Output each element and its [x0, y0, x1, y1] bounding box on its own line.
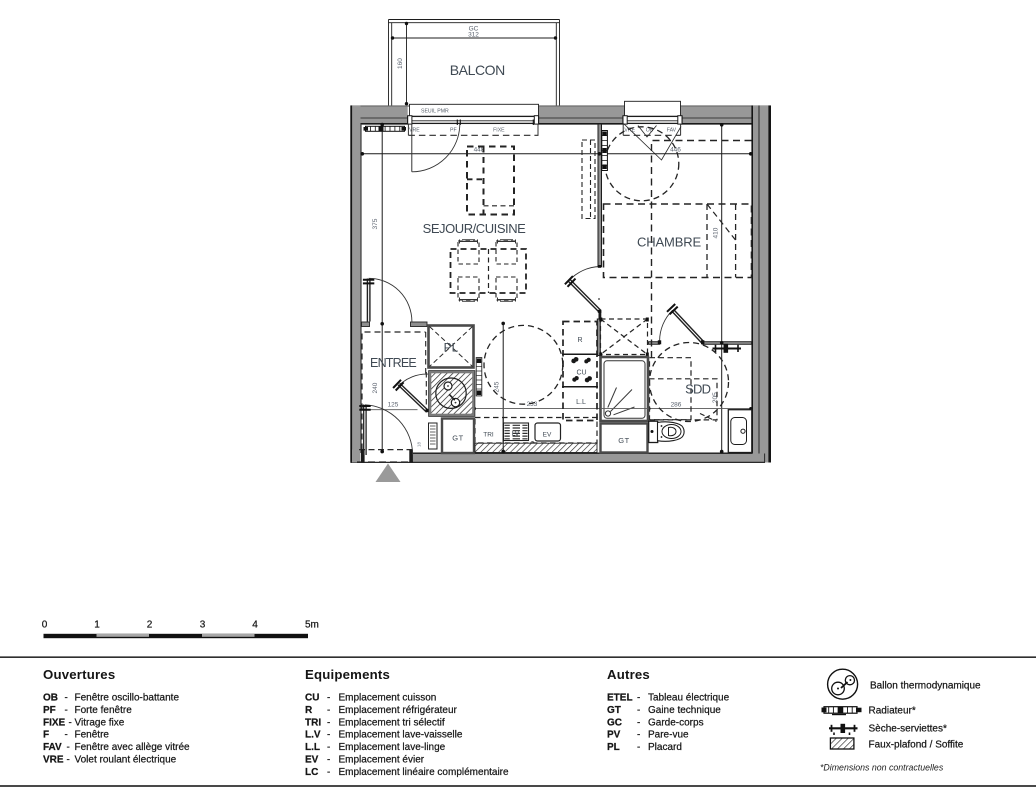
svg-text:-: - — [327, 717, 330, 728]
svg-text:Ballon thermodynamique: Ballon thermodynamique — [870, 681, 981, 692]
svg-text:LV: LV — [512, 431, 520, 438]
svg-text:18: 18 — [417, 441, 422, 447]
svg-text:Emplacement lave-vaisselle: Emplacement lave-vaisselle — [339, 730, 463, 741]
svg-text:Pare-vue: Pare-vue — [648, 730, 689, 741]
svg-text:Tableau électrique: Tableau électrique — [648, 693, 730, 704]
svg-text:4: 4 — [252, 620, 258, 631]
svg-text:3: 3 — [200, 620, 206, 631]
svg-text:Fenêtre avec allège vitrée: Fenêtre avec allège vitrée — [75, 742, 191, 753]
svg-text:FIXE: FIXE — [493, 127, 505, 133]
svg-text:-: - — [67, 742, 70, 753]
svg-text:FAV: FAV — [667, 127, 677, 133]
svg-text:-: - — [637, 705, 640, 716]
svg-text:LC: LC — [305, 767, 318, 778]
svg-text:-: - — [327, 730, 330, 741]
svg-text:-: - — [65, 693, 68, 704]
svg-text:Ouvertures: Ouvertures — [43, 667, 115, 682]
svg-text:ETEL: ETEL — [607, 693, 633, 704]
svg-text:GT: GT — [452, 434, 463, 443]
svg-text:EV: EV — [543, 432, 552, 439]
svg-text:410: 410 — [712, 227, 719, 238]
svg-text:PV: PV — [607, 730, 621, 741]
svg-text:Fenêtre: Fenêtre — [75, 730, 110, 741]
svg-text:BALCON: BALCON — [450, 62, 505, 78]
svg-text:PL: PL — [444, 341, 459, 355]
svg-text:Autres: Autres — [607, 667, 650, 682]
svg-text:VRE: VRE — [409, 127, 420, 133]
svg-text:ENTREE: ENTREE — [370, 356, 416, 370]
svg-text:-: - — [67, 755, 70, 766]
svg-text:-: - — [327, 693, 330, 704]
svg-text:Equipements: Equipements — [305, 667, 390, 682]
svg-text:375: 375 — [372, 218, 379, 229]
svg-text:-: - — [327, 742, 330, 753]
svg-text:160: 160 — [397, 58, 404, 69]
svg-text:TRI: TRI — [483, 432, 494, 439]
svg-text:L.L: L.L — [305, 742, 320, 753]
svg-text:R: R — [577, 337, 582, 344]
svg-text:Radiateur*: Radiateur* — [869, 706, 916, 717]
svg-text:EV: EV — [305, 755, 319, 766]
svg-text:1: 1 — [94, 620, 100, 631]
svg-text:CU: CU — [305, 693, 319, 704]
svg-text:125: 125 — [388, 402, 399, 409]
svg-text:-: - — [327, 705, 330, 716]
svg-text:OB: OB — [43, 693, 58, 704]
svg-text:Emplacement cuisson: Emplacement cuisson — [339, 693, 437, 704]
svg-text:PF: PF — [43, 705, 56, 716]
svg-text:PL: PL — [607, 742, 620, 753]
svg-text:-: - — [69, 717, 72, 728]
svg-text:Placard: Placard — [648, 742, 682, 753]
svg-text:GC: GC — [607, 717, 622, 728]
svg-text:Volet roulant électrique: Volet roulant électrique — [75, 755, 177, 766]
svg-text:0: 0 — [42, 620, 48, 631]
svg-text:Emplacement lave-linge: Emplacement lave-linge — [339, 742, 446, 753]
svg-text:-: - — [327, 755, 330, 766]
svg-text:Forte fenêtre: Forte fenêtre — [75, 705, 133, 716]
svg-text:Faux-plafond / Soffite: Faux-plafond / Soffite — [869, 740, 964, 751]
svg-text:CHAMBRE: CHAMBRE — [637, 235, 701, 250]
svg-text:PF: PF — [450, 127, 457, 133]
svg-text:-: - — [637, 742, 640, 753]
svg-text:-: - — [65, 730, 68, 741]
svg-text:SEJOUR/CUISINE: SEJOUR/CUISINE — [423, 221, 527, 236]
svg-text:FAV: FAV — [43, 742, 62, 753]
svg-text:Garde-corps: Garde-corps — [648, 717, 704, 728]
svg-text:-: - — [65, 705, 68, 716]
svg-text:-: - — [637, 730, 640, 741]
svg-text:Gaine technique: Gaine technique — [648, 705, 721, 716]
svg-text:*Dimensions non contractuelles: *Dimensions non contractuelles — [820, 763, 944, 773]
svg-text:FIXE: FIXE — [43, 717, 66, 728]
svg-text:-: - — [637, 717, 640, 728]
svg-text:233: 233 — [527, 401, 538, 408]
svg-text:-: - — [637, 693, 640, 704]
svg-text:205: 205 — [712, 392, 719, 403]
svg-text:240: 240 — [372, 382, 379, 393]
svg-text:286: 286 — [671, 401, 682, 408]
svg-text:Emplacement linéaire complémen: Emplacement linéaire complémentaire — [339, 767, 510, 778]
svg-text:GT: GT — [618, 436, 629, 445]
svg-text:TRI: TRI — [305, 717, 321, 728]
svg-text:Emplacement réfrigérateur: Emplacement réfrigérateur — [339, 705, 458, 716]
svg-text:F: F — [43, 730, 49, 741]
svg-text:Emplacement tri sélectif: Emplacement tri sélectif — [339, 717, 445, 728]
svg-text:R: R — [305, 705, 313, 716]
svg-text:L.L: L.L — [576, 399, 586, 406]
svg-text:SDD: SDD — [685, 382, 710, 397]
svg-text:-: - — [327, 767, 330, 778]
svg-text:Fenêtre oscillo-battante: Fenêtre oscillo-battante — [75, 693, 180, 704]
svg-text:CU: CU — [576, 370, 586, 377]
svg-text:L.V: L.V — [305, 730, 321, 741]
svg-text:Sèche-serviettes*: Sèche-serviettes* — [869, 724, 947, 735]
svg-text:GT: GT — [607, 705, 621, 716]
svg-text:Emplacement évier: Emplacement évier — [339, 755, 425, 766]
svg-text:VRE: VRE — [43, 755, 64, 766]
svg-text:SEUIL PMR: SEUIL PMR — [421, 109, 449, 115]
svg-text:312: 312 — [468, 31, 479, 38]
svg-text:5m: 5m — [305, 620, 319, 631]
svg-text:Vitrage fixe: Vitrage fixe — [75, 717, 125, 728]
svg-text:2: 2 — [147, 620, 153, 631]
